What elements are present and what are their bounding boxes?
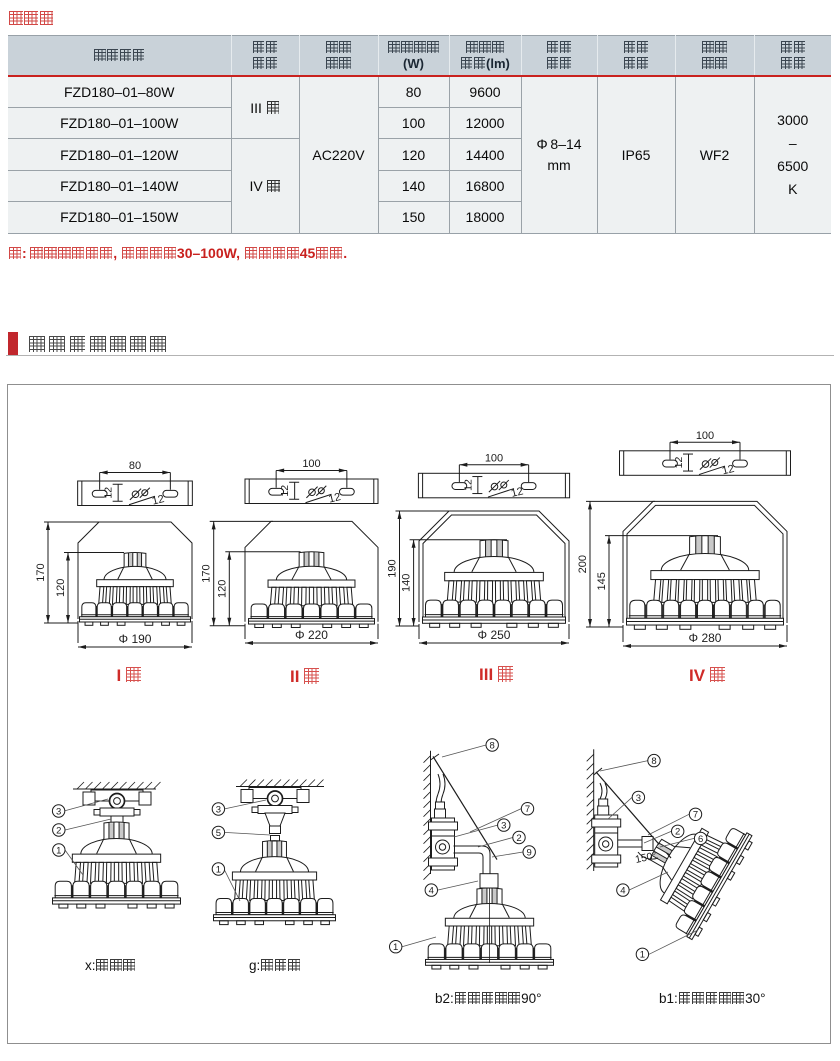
svg-text:145: 145: [596, 572, 608, 590]
svg-text:12: 12: [103, 487, 115, 499]
svg-text:2: 2: [516, 833, 521, 844]
svg-text:8: 8: [651, 756, 656, 767]
svg-text:12: 12: [462, 479, 474, 491]
svg-text:3: 3: [216, 804, 221, 815]
svg-text:80: 80: [129, 460, 141, 472]
svg-text:3: 3: [501, 821, 506, 832]
svg-text:Φ 250: Φ 250: [478, 628, 511, 642]
svg-text:7: 7: [693, 810, 698, 821]
svg-text:3: 3: [636, 793, 641, 804]
svg-text:7: 7: [525, 804, 530, 815]
svg-text:100: 100: [485, 452, 503, 464]
svg-text:1: 1: [393, 942, 398, 953]
svg-text:170: 170: [35, 563, 47, 581]
svg-text:3: 3: [56, 806, 61, 817]
svg-text:1: 1: [56, 845, 61, 856]
svg-text:Φ 280: Φ 280: [689, 631, 722, 645]
svg-text:Φ 190: Φ 190: [119, 632, 152, 646]
svg-text:6: 6: [698, 834, 703, 845]
svg-text:2: 2: [675, 827, 680, 838]
svg-text:140: 140: [401, 574, 413, 592]
svg-text:Φ 220: Φ 220: [295, 628, 328, 642]
svg-text:12: 12: [673, 457, 685, 469]
svg-text:190: 190: [387, 559, 399, 577]
svg-text:4: 4: [620, 886, 625, 897]
svg-text:1: 1: [216, 864, 221, 875]
svg-text:1: 1: [640, 950, 645, 961]
svg-text:8: 8: [490, 740, 495, 751]
svg-text:5: 5: [216, 828, 221, 839]
svg-text:2: 2: [56, 825, 61, 836]
svg-text:150°: 150°: [634, 850, 658, 866]
svg-text:120: 120: [216, 580, 228, 598]
svg-text:4: 4: [429, 886, 434, 897]
svg-text:200: 200: [577, 555, 589, 573]
svg-text:100: 100: [302, 458, 320, 470]
svg-text:170: 170: [201, 564, 213, 582]
svg-text:100: 100: [696, 430, 714, 442]
svg-text:9: 9: [527, 847, 532, 858]
svg-text:12: 12: [279, 485, 291, 497]
svg-text:120: 120: [55, 579, 67, 597]
